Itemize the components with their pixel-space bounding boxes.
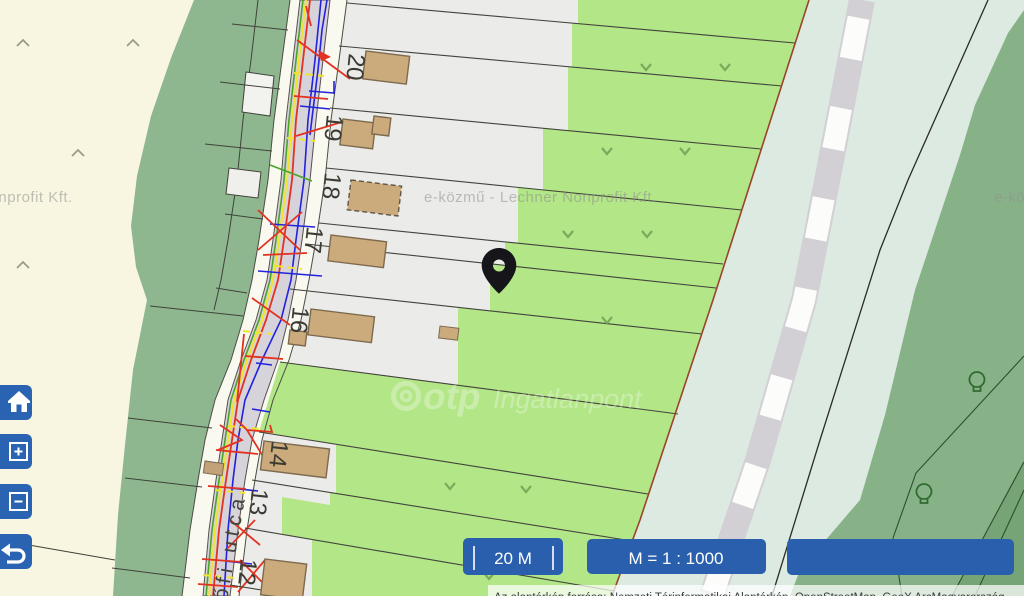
svg-text:e-közmű - Lechner Nonprofit Kf: e-közmű - Lechner Nonprofit Kft. <box>0 189 73 206</box>
svg-text:20 M: 20 M <box>494 549 532 568</box>
svg-text:17: 17 <box>298 225 328 254</box>
svg-text:M = 1 : 1000: M = 1 : 1000 <box>629 549 724 568</box>
svg-text:14: 14 <box>263 439 293 468</box>
svg-text:19: 19 <box>318 113 348 142</box>
svg-text:e-közmű - Lechner Nonprofit Kf: e-közmű - Lechner Nonprofit Kft. <box>994 189 1024 206</box>
svg-text:16: 16 <box>284 305 314 334</box>
svg-text:20: 20 <box>340 52 370 81</box>
svg-text:Az alaptérkép forrása: Nemzeti: Az alaptérkép forrása: Nemzeti Térinform… <box>494 592 1005 596</box>
svg-text:otp: otp <box>423 376 481 417</box>
svg-text:e-közmű - Lechner Nonprofit Kf: e-közmű - Lechner Nonprofit Kft. <box>424 189 657 206</box>
svg-text:18: 18 <box>316 171 346 200</box>
svg-text:Ingatlanpont: Ingatlanpont <box>493 384 643 414</box>
